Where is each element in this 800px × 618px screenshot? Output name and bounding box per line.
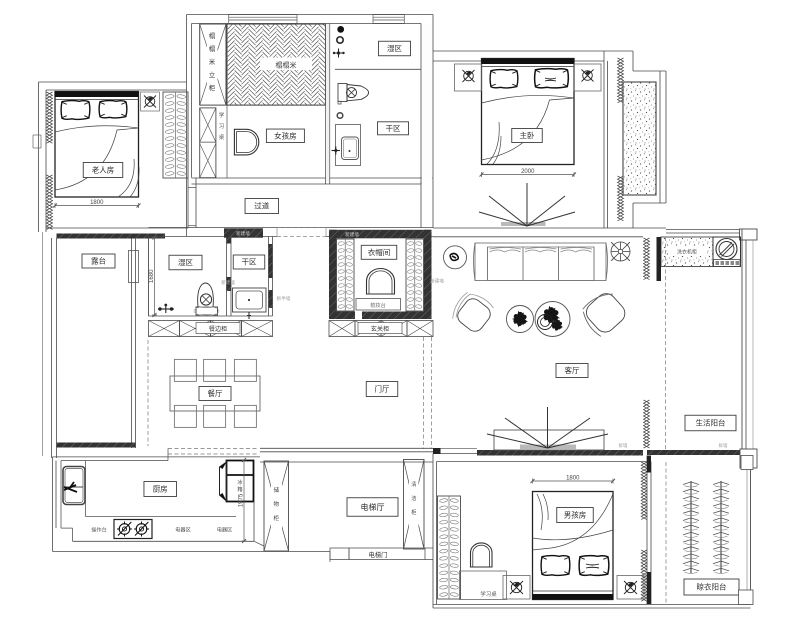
svg-text:电器区: 电器区	[175, 526, 191, 534]
svg-text:男孩房: 男孩房	[564, 510, 587, 520]
svg-text:1800: 1800	[566, 476, 580, 482]
svg-text:洗衣机柜: 洗衣机柜	[677, 249, 697, 256]
svg-text:湿区: 湿区	[178, 258, 193, 267]
svg-text:湿区: 湿区	[387, 44, 402, 53]
svg-text:衣帽间: 衣帽间	[368, 247, 391, 257]
svg-text:新建墙: 新建墙	[345, 231, 359, 238]
svg-text:客厅: 客厅	[565, 365, 580, 375]
svg-text:主卧: 主卧	[520, 130, 535, 140]
svg-text:1975: 1975	[239, 493, 245, 507]
svg-text:干区: 干区	[386, 124, 401, 133]
svg-text:露台: 露台	[91, 256, 106, 266]
svg-text:米: 米	[209, 57, 216, 66]
svg-text:拆墙: 拆墙	[719, 442, 728, 449]
svg-text:习: 习	[219, 123, 225, 130]
svg-text:学习桌: 学习桌	[480, 590, 497, 598]
svg-text:立: 立	[209, 70, 216, 79]
svg-text:榻: 榻	[209, 31, 216, 40]
svg-text:柜: 柜	[411, 508, 416, 516]
svg-text:过道: 过道	[254, 201, 269, 211]
svg-text:晾衣阳台: 晾衣阳台	[697, 582, 727, 592]
svg-text:学: 学	[219, 111, 225, 119]
svg-text:新建墙: 新建墙	[236, 230, 250, 237]
svg-text:老人房: 老人房	[92, 165, 115, 175]
svg-text:新建墙: 新建墙	[221, 279, 235, 286]
svg-text:洁: 洁	[411, 494, 416, 502]
svg-text:玄关柜: 玄关柜	[371, 325, 390, 333]
svg-text:冰: 冰	[237, 478, 243, 486]
svg-text:餐厅: 餐厅	[208, 389, 223, 398]
svg-text:桌: 桌	[219, 133, 225, 141]
svg-text:厨房: 厨房	[153, 484, 168, 494]
svg-text:拆墙: 拆墙	[619, 442, 628, 449]
svg-text:榻榻米: 榻榻米	[276, 61, 297, 70]
svg-text:干区: 干区	[242, 258, 257, 267]
svg-text:生活阳台: 生活阳台	[696, 418, 726, 428]
svg-text:梳妆台: 梳妆台	[370, 301, 386, 309]
svg-text:操作台: 操作台	[91, 526, 107, 534]
svg-text:拆半墙: 拆半墙	[277, 295, 291, 302]
svg-text:门厅: 门厅	[375, 385, 390, 394]
svg-text:电梯门: 电梯门	[369, 550, 388, 559]
svg-text:储: 储	[273, 486, 279, 494]
svg-text:物: 物	[273, 500, 279, 508]
svg-text:1800: 1800	[90, 200, 104, 206]
svg-text:箱: 箱	[237, 485, 242, 493]
svg-text:餐边柜: 餐边柜	[209, 325, 228, 333]
svg-text:1680: 1680	[149, 269, 155, 283]
svg-text:榻: 榻	[209, 44, 216, 53]
svg-text:柜: 柜	[273, 514, 279, 522]
svg-text:清: 清	[411, 480, 416, 488]
svg-text:女孩房: 女孩房	[274, 131, 297, 141]
svg-text:电梯厅: 电梯厅	[361, 502, 385, 512]
svg-text:柜: 柜	[209, 83, 216, 92]
svg-text:电器区: 电器区	[217, 526, 233, 534]
svg-text:新建墙: 新建墙	[430, 278, 444, 285]
svg-text:2000: 2000	[521, 169, 535, 175]
